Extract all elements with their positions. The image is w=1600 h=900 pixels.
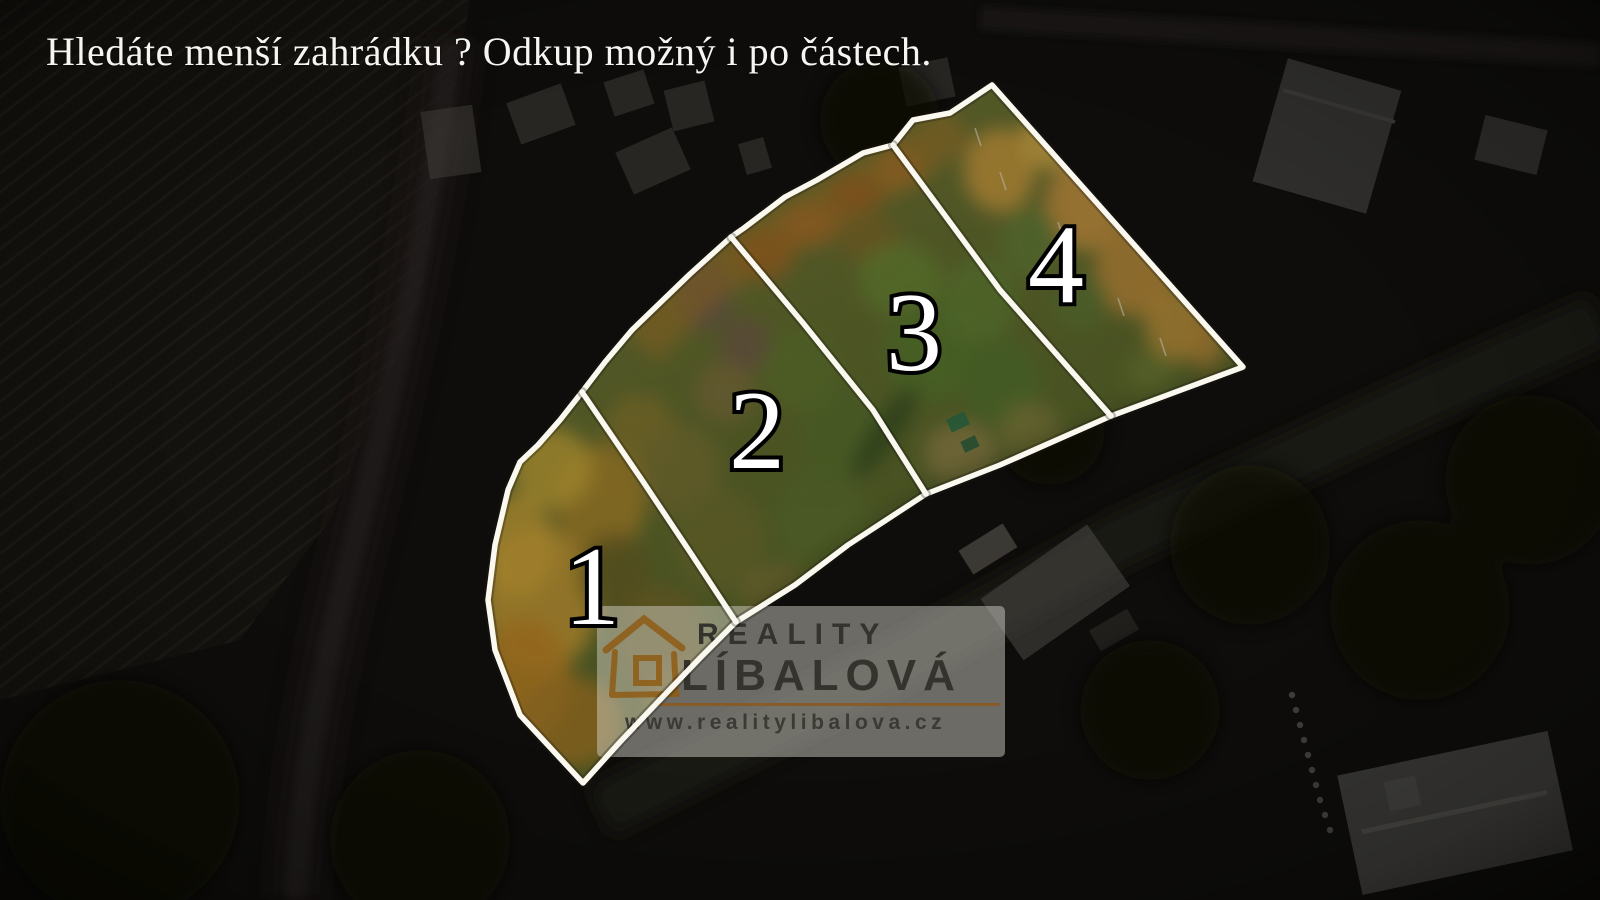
watermark-divider-rule	[652, 703, 1000, 706]
aerial-photo-background	[0, 0, 1600, 900]
agency-name-line1: REALITY	[697, 618, 888, 652]
agency-watermark-panel: REALITY LÍBALOVÁ www.realitylibalova.cz	[597, 606, 1005, 757]
vignette	[0, 0, 1600, 900]
agency-name-line2: LÍBALOVÁ	[681, 651, 962, 701]
house-icon	[597, 606, 691, 702]
headline-text: Hledáte menší zahrádku ? Odkup možný i p…	[46, 28, 1246, 75]
real-estate-photo-ad: REALITY LÍBALOVÁ www.realitylibalova.cz …	[0, 0, 1600, 900]
agency-website: www.realitylibalova.cz	[625, 711, 946, 735]
